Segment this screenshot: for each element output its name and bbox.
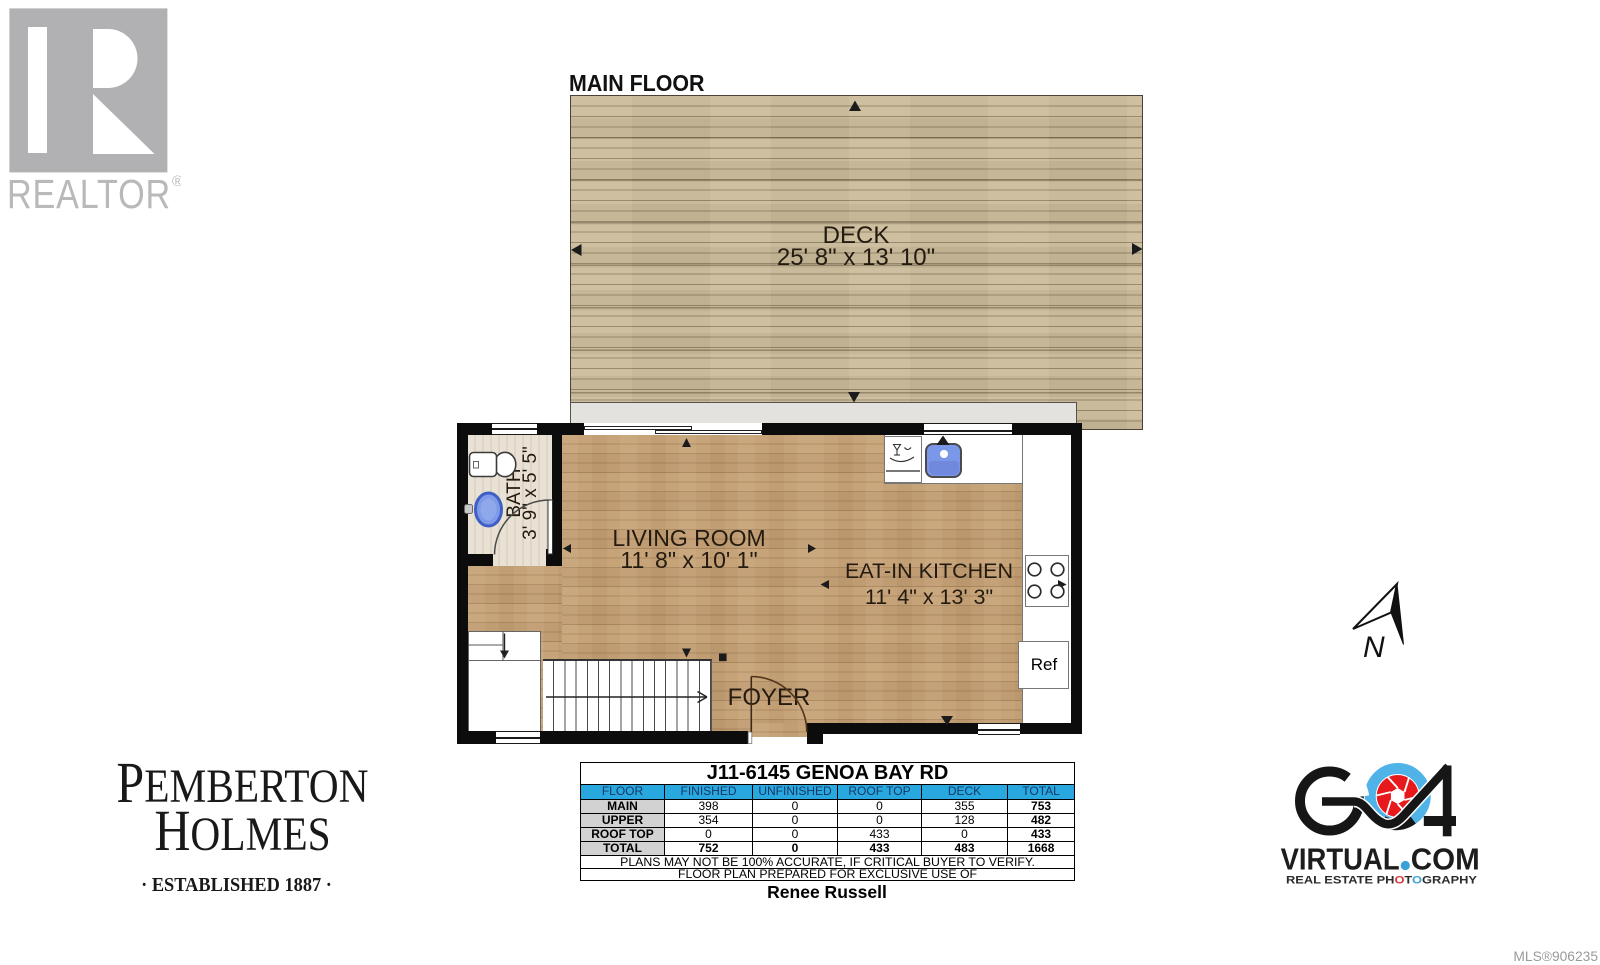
svg-text:VIRTUAL: VIRTUAL bbox=[1281, 842, 1400, 877]
svg-text:N: N bbox=[1363, 631, 1385, 664]
svg-text:COM: COM bbox=[1411, 842, 1480, 877]
svg-text:REAL ESTATE PHOTOGRAPHY: REAL ESTATE PHOTOGRAPHY bbox=[1286, 875, 1478, 887]
